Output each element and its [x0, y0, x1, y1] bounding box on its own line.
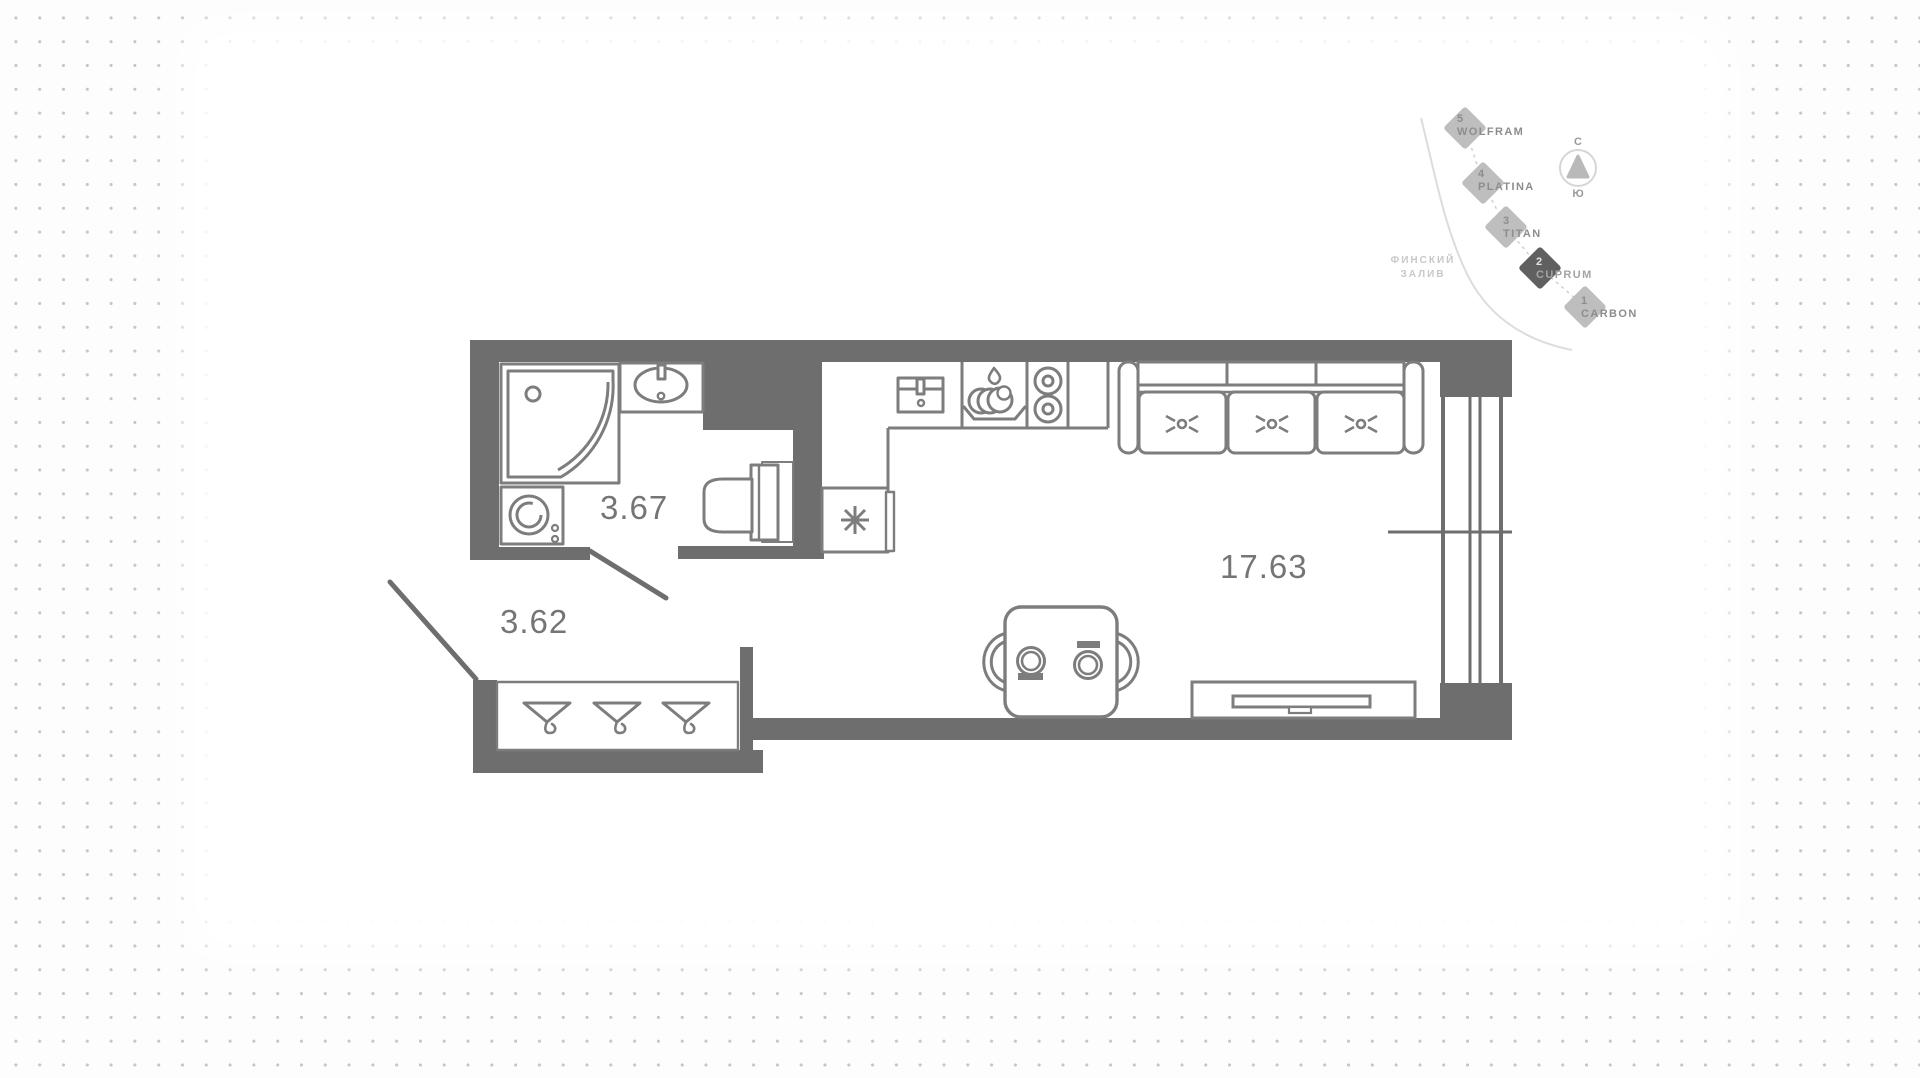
tv-stand — [1192, 682, 1415, 718]
building-label-titan[interactable]: 3 TITAN — [1503, 215, 1542, 241]
compass-north-label: С — [1568, 136, 1588, 148]
building-number: 3 — [1503, 215, 1542, 228]
wardrobe — [497, 682, 738, 750]
sofa-back — [1138, 362, 1404, 385]
place-setting-icon — [1075, 641, 1102, 679]
tv-bracket — [1289, 707, 1311, 713]
washing-machine-icon — [501, 487, 563, 544]
area-label-bathroom: 3.67 — [600, 489, 668, 527]
building-number: 2 — [1536, 256, 1593, 269]
building-number: 4 — [1478, 168, 1535, 181]
place-setting-icon — [1018, 648, 1045, 681]
building-name: WOLFRAM — [1457, 126, 1524, 139]
building-name: TITAN — [1503, 228, 1542, 241]
kitchen — [822, 362, 1108, 552]
gulf-label: ФИНСКИЙ ЗАЛИВ — [1383, 254, 1463, 282]
building-name: CUPRUM — [1536, 269, 1593, 282]
bathroom-sink-icon — [620, 363, 703, 412]
gulf-label-line2: ЗАЛИВ — [1383, 268, 1463, 282]
toilet-icon — [704, 462, 793, 542]
dish-rack-icon — [964, 368, 1025, 419]
wall-shaft-block — [703, 362, 793, 430]
building-number: 1 — [1581, 295, 1638, 308]
tv-icon — [1233, 696, 1370, 707]
wall-step — [740, 647, 753, 750]
wall-bottom — [753, 718, 1512, 740]
building-label-carbon[interactable]: 1 CARBON — [1581, 295, 1638, 321]
sofa-armrest-left — [1119, 362, 1138, 453]
kitchen-sink-icon — [898, 378, 943, 412]
shower-icon — [501, 364, 619, 483]
building-name: CARBON — [1581, 308, 1638, 321]
wall-wardrobe-bottom — [473, 750, 763, 773]
sofa — [1119, 362, 1423, 453]
sofa-armrest-right — [1404, 362, 1423, 453]
wall-left — [470, 340, 499, 560]
entrance-door-swing — [390, 582, 476, 679]
building-label-cuprum[interactable]: 2 CUPRUM — [1536, 256, 1593, 282]
fridge-icon — [822, 488, 894, 552]
sofa-seat — [1139, 392, 1226, 453]
wall-window-pier-top — [1440, 362, 1512, 397]
dining-set — [984, 607, 1139, 717]
building-label-platina[interactable]: 4 PLATINA — [1478, 168, 1535, 194]
area-label-hallway: 3.62 — [500, 603, 568, 641]
compass — [1560, 150, 1596, 186]
building-label-wolfram[interactable]: 5 WOLFRAM — [1457, 113, 1524, 139]
sofa-seat — [1228, 392, 1315, 453]
stove-icon — [1035, 368, 1061, 422]
gulf-label-line1: ФИНСКИЙ — [1383, 254, 1463, 268]
building-number: 5 — [1457, 113, 1524, 126]
area-label-living-room: 17.63 — [1220, 548, 1308, 586]
wall-bathroom-kitchen-divider — [793, 362, 822, 558]
compass-south-label: Ю — [1568, 188, 1588, 200]
bathroom-door-swing — [590, 551, 666, 598]
snowflake-icon — [841, 506, 869, 534]
wall-bathroom-bottom-left — [470, 547, 590, 560]
building-name: PLATINA — [1478, 181, 1535, 194]
floorplan-svg — [0, 0, 1920, 1078]
sofa-seat — [1317, 392, 1404, 453]
wall-top — [470, 340, 1512, 362]
